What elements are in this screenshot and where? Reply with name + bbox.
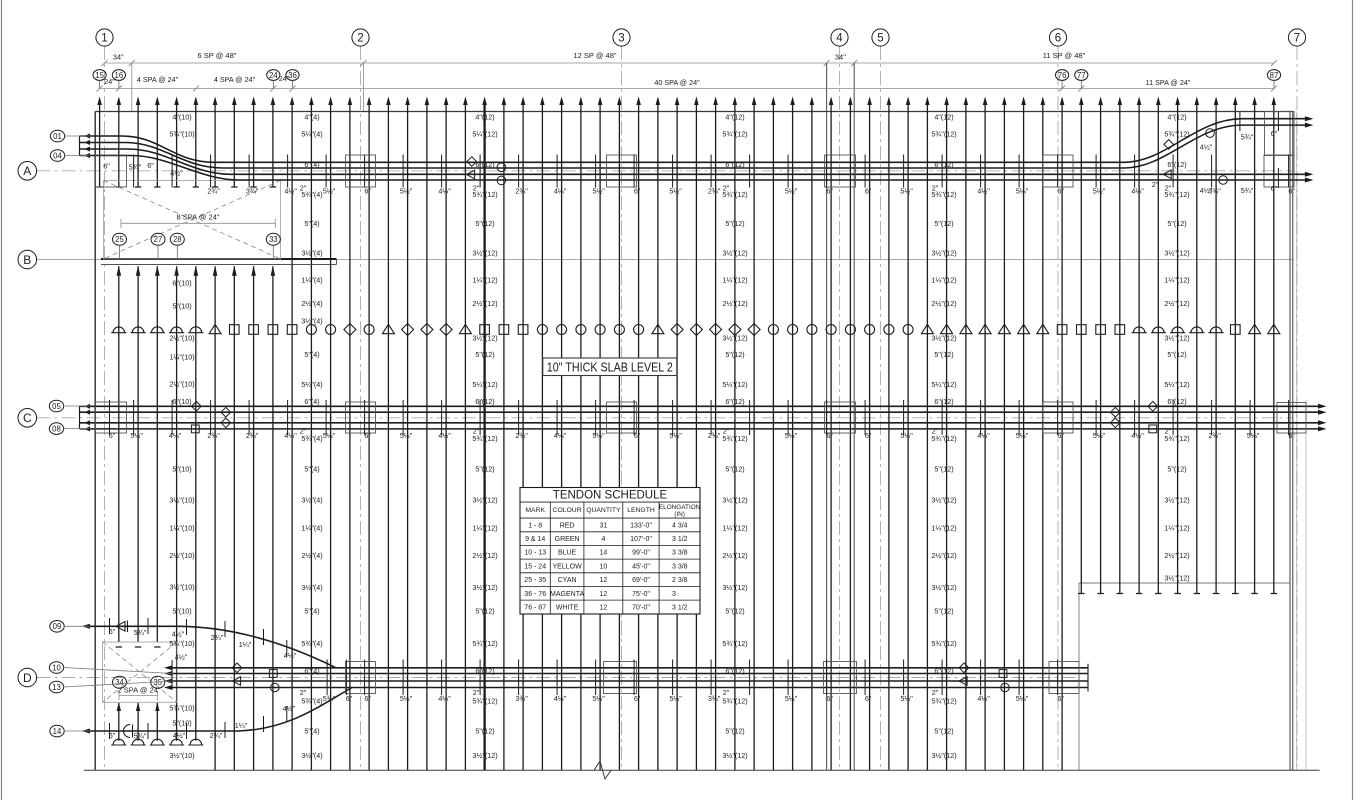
svg-text:5"(12): 5"(12) bbox=[934, 727, 953, 736]
svg-text:4½": 4½" bbox=[438, 431, 451, 440]
svg-text:4¼": 4¼" bbox=[169, 431, 182, 440]
svg-text:3½"(12): 3½"(12) bbox=[472, 751, 497, 760]
svg-text:5¾"(4): 5¾"(4) bbox=[301, 697, 322, 706]
svg-text:6": 6" bbox=[1288, 187, 1295, 196]
svg-text:01: 01 bbox=[53, 132, 62, 141]
svg-text:4¼": 4¼" bbox=[1131, 187, 1144, 196]
svg-text:3½"(10): 3½"(10) bbox=[169, 496, 194, 505]
svg-text:76 - 87: 76 - 87 bbox=[524, 604, 546, 611]
svg-text:5¾"(12): 5¾"(12) bbox=[1164, 190, 1189, 199]
svg-text:5½": 5½" bbox=[130, 431, 143, 440]
svg-text:10: 10 bbox=[52, 663, 61, 672]
svg-text:5¾": 5¾" bbox=[1241, 186, 1254, 195]
svg-text:6": 6" bbox=[1271, 184, 1278, 193]
svg-text:6"(4): 6"(4) bbox=[304, 667, 319, 676]
svg-text:5"(10): 5"(10) bbox=[172, 465, 191, 474]
svg-text:5¾"(4): 5¾"(4) bbox=[301, 434, 322, 443]
svg-text:2½"(4): 2½"(4) bbox=[301, 299, 322, 308]
svg-text:2": 2" bbox=[1152, 180, 1159, 189]
svg-text:1¼": 1¼" bbox=[235, 721, 248, 730]
svg-text:3½"(4): 3½"(4) bbox=[301, 751, 322, 760]
svg-text:4: 4 bbox=[601, 536, 605, 543]
svg-text:RED: RED bbox=[560, 522, 575, 529]
svg-text:5"(12): 5"(12) bbox=[934, 350, 953, 359]
svg-text:12 SP @ 48": 12 SP @ 48" bbox=[573, 51, 616, 60]
svg-text:1: 1 bbox=[101, 33, 107, 45]
svg-text:6"(10): 6"(10) bbox=[172, 397, 191, 406]
svg-text:6"(12): 6"(12) bbox=[475, 160, 494, 169]
svg-text:6": 6" bbox=[1057, 187, 1064, 196]
svg-text:5¾"(12): 5¾"(12) bbox=[931, 190, 956, 199]
svg-text:5"(12): 5"(12) bbox=[725, 727, 744, 736]
svg-text:6"(12): 6"(12) bbox=[475, 397, 494, 406]
svg-text:5¾"(10): 5¾"(10) bbox=[169, 639, 194, 648]
svg-text:6": 6" bbox=[109, 431, 116, 440]
svg-text:6": 6" bbox=[147, 161, 154, 170]
svg-text:CYAN: CYAN bbox=[558, 577, 577, 584]
svg-text:5¼"(4): 5¼"(4) bbox=[301, 130, 322, 139]
svg-text:4"(12): 4"(12) bbox=[934, 113, 953, 122]
svg-text:5"(12): 5"(12) bbox=[1167, 219, 1186, 228]
svg-text:4 3/4: 4 3/4 bbox=[672, 522, 688, 529]
svg-text:YELLOW: YELLOW bbox=[553, 563, 583, 570]
svg-text:4½": 4½" bbox=[170, 169, 183, 178]
svg-text:3½"(12): 3½"(12) bbox=[472, 496, 497, 505]
svg-text:6"(12): 6"(12) bbox=[725, 160, 744, 169]
svg-text:5½": 5½" bbox=[900, 187, 913, 196]
svg-text:5¾"(12): 5¾"(12) bbox=[722, 639, 747, 648]
svg-text:3½"(12): 3½"(12) bbox=[722, 751, 747, 760]
svg-text:5"(12): 5"(12) bbox=[934, 607, 953, 616]
svg-text:5"(12): 5"(12) bbox=[725, 465, 744, 474]
svg-text:4"(12): 4"(12) bbox=[725, 113, 744, 122]
svg-text:3½"(12): 3½"(12) bbox=[1164, 249, 1189, 258]
svg-text:5"(12): 5"(12) bbox=[1167, 465, 1186, 474]
svg-text:5"(4): 5"(4) bbox=[304, 465, 319, 474]
svg-text:34": 34" bbox=[835, 53, 846, 62]
svg-text:5½": 5½" bbox=[785, 187, 798, 196]
svg-text:1¼"(12): 1¼"(12) bbox=[1164, 524, 1189, 533]
svg-text:4¼": 4¼" bbox=[554, 187, 567, 196]
svg-text:1¼"(4): 1¼"(4) bbox=[301, 276, 322, 285]
svg-text:4½": 4½" bbox=[977, 694, 990, 703]
svg-text:5"(12): 5"(12) bbox=[725, 607, 744, 616]
svg-text:5"(12): 5"(12) bbox=[475, 465, 494, 474]
svg-text:3¾": 3¾" bbox=[708, 694, 721, 703]
svg-text:5"(12): 5"(12) bbox=[475, 219, 494, 228]
svg-text:5"(12): 5"(12) bbox=[725, 350, 744, 359]
svg-text:5¾"(12): 5¾"(12) bbox=[1164, 434, 1189, 443]
svg-text:08: 08 bbox=[52, 425, 61, 434]
svg-text:3 1/2: 3 1/2 bbox=[672, 604, 688, 611]
svg-text:5¼"(12): 5¼"(12) bbox=[931, 380, 956, 389]
svg-text:6: 6 bbox=[1055, 33, 1061, 45]
svg-text:4 SPA @ 24": 4 SPA @ 24" bbox=[137, 75, 179, 84]
svg-text:107'-0": 107'-0" bbox=[630, 536, 652, 543]
svg-text:6": 6" bbox=[364, 187, 371, 196]
svg-text:4½": 4½" bbox=[284, 187, 297, 196]
svg-text:5"(12): 5"(12) bbox=[934, 219, 953, 228]
svg-text:2¾": 2¾" bbox=[515, 431, 528, 440]
svg-text:12: 12 bbox=[600, 591, 608, 598]
svg-text:3½"(12): 3½"(12) bbox=[931, 334, 956, 343]
svg-text:4¼": 4¼" bbox=[438, 187, 451, 196]
svg-text:3 3/8: 3 3/8 bbox=[672, 563, 688, 570]
svg-text:5"(12): 5"(12) bbox=[475, 350, 494, 359]
svg-text:5¼": 5¼" bbox=[1016, 187, 1029, 196]
svg-text:2½"(12): 2½"(12) bbox=[472, 551, 497, 560]
svg-text:MARK: MARK bbox=[525, 507, 545, 514]
svg-text:6": 6" bbox=[634, 694, 641, 703]
svg-text:04: 04 bbox=[53, 151, 62, 160]
svg-text:5½": 5½" bbox=[1093, 431, 1106, 440]
svg-text:5"(10): 5"(10) bbox=[172, 719, 191, 728]
svg-text:2¾": 2¾" bbox=[515, 187, 528, 196]
svg-text:4¼": 4¼" bbox=[1131, 431, 1144, 440]
svg-text:6"(10): 6"(10) bbox=[172, 279, 191, 288]
svg-text:27: 27 bbox=[154, 235, 163, 244]
svg-text:5"(4): 5"(4) bbox=[304, 219, 319, 228]
svg-text:5¾"(12): 5¾"(12) bbox=[931, 130, 956, 139]
svg-text:1¼"(12): 1¼"(12) bbox=[931, 276, 956, 285]
svg-text:5"(4): 5"(4) bbox=[304, 607, 319, 616]
svg-text:2½"(12): 2½"(12) bbox=[722, 299, 747, 308]
svg-text:BLUE: BLUE bbox=[558, 550, 577, 557]
svg-text:3½"(12): 3½"(12) bbox=[931, 249, 956, 258]
svg-text:5½": 5½" bbox=[900, 431, 913, 440]
svg-text:5½": 5½" bbox=[400, 187, 413, 196]
svg-text:33: 33 bbox=[269, 235, 278, 244]
svg-text:COLOUR: COLOUR bbox=[553, 507, 582, 514]
svg-text:6": 6" bbox=[346, 694, 353, 703]
svg-text:4¼": 4¼" bbox=[554, 431, 567, 440]
svg-text:6": 6" bbox=[634, 431, 641, 440]
svg-text:A: A bbox=[23, 164, 31, 178]
svg-text:5½": 5½" bbox=[592, 431, 605, 440]
svg-text:6": 6" bbox=[364, 431, 371, 440]
svg-text:75'-0": 75'-0" bbox=[632, 591, 650, 598]
svg-text:6": 6" bbox=[865, 694, 872, 703]
svg-text:05: 05 bbox=[52, 402, 61, 411]
svg-text:2¾": 2¾" bbox=[246, 431, 259, 440]
svg-text:3½"(12): 3½"(12) bbox=[722, 249, 747, 258]
svg-text:MAGENTA: MAGENTA bbox=[550, 591, 584, 598]
svg-text:5¼"(12): 5¼"(12) bbox=[722, 380, 747, 389]
svg-text:3½"(12): 3½"(12) bbox=[722, 583, 747, 592]
svg-text:12: 12 bbox=[600, 577, 608, 584]
svg-text:5¾"(12): 5¾"(12) bbox=[722, 190, 747, 199]
svg-text:2¾": 2¾" bbox=[708, 431, 721, 440]
svg-text:70'-0": 70'-0" bbox=[632, 604, 650, 611]
svg-text:5"(12): 5"(12) bbox=[475, 607, 494, 616]
svg-text:5½": 5½" bbox=[669, 694, 682, 703]
svg-text:6": 6" bbox=[826, 431, 833, 440]
svg-text:4: 4 bbox=[836, 33, 843, 45]
svg-text:5¾"(4): 5¾"(4) bbox=[301, 639, 322, 648]
svg-text:4½": 4½" bbox=[977, 431, 990, 440]
svg-text:4"(4): 4"(4) bbox=[304, 113, 319, 122]
svg-text:(IN): (IN) bbox=[674, 511, 685, 518]
svg-text:5½": 5½" bbox=[592, 694, 605, 703]
svg-text:16: 16 bbox=[115, 71, 124, 80]
svg-text:5¼": 5¼" bbox=[1247, 431, 1260, 440]
svg-text:09: 09 bbox=[53, 622, 62, 631]
svg-text:3½"(10): 3½"(10) bbox=[169, 751, 194, 760]
svg-text:5¾"(12): 5¾"(12) bbox=[1164, 130, 1189, 139]
svg-text:5"(12): 5"(12) bbox=[934, 465, 953, 474]
svg-text:3½"(12): 3½"(12) bbox=[472, 334, 497, 343]
svg-text:36 - 76: 36 - 76 bbox=[524, 591, 546, 598]
svg-text:6": 6" bbox=[109, 731, 116, 740]
svg-text:45'-0": 45'-0" bbox=[632, 563, 650, 570]
svg-text:5¾": 5¾" bbox=[129, 163, 142, 172]
svg-text:3 3/8: 3 3/8 bbox=[672, 550, 688, 557]
svg-text:6": 6" bbox=[865, 431, 872, 440]
svg-text:5¼": 5¼" bbox=[669, 431, 682, 440]
svg-text:5"(10): 5"(10) bbox=[172, 607, 191, 616]
svg-text:5: 5 bbox=[877, 33, 883, 45]
svg-text:1¼"(12): 1¼"(12) bbox=[472, 276, 497, 285]
svg-text:10: 10 bbox=[600, 563, 608, 570]
svg-text:4½": 4½" bbox=[1200, 143, 1213, 152]
svg-text:4"(10): 4"(10) bbox=[172, 113, 191, 122]
svg-text:5¾": 5¾" bbox=[1241, 133, 1254, 142]
svg-text:5½": 5½" bbox=[323, 431, 336, 440]
svg-text:5¾"(10): 5¾"(10) bbox=[169, 130, 194, 139]
svg-text:4½": 4½" bbox=[172, 630, 185, 639]
svg-text:15 - 24: 15 - 24 bbox=[524, 563, 546, 570]
svg-text:76: 76 bbox=[1058, 71, 1067, 80]
svg-text:5½": 5½" bbox=[785, 694, 798, 703]
svg-text:3½"(12): 3½"(12) bbox=[1164, 334, 1189, 343]
svg-text:5¼"(12): 5¼"(12) bbox=[1164, 380, 1189, 389]
svg-text:5"(4): 5"(4) bbox=[304, 727, 319, 736]
svg-text:5"(12): 5"(12) bbox=[475, 727, 494, 736]
svg-text:1¼"(4): 1¼"(4) bbox=[301, 524, 322, 533]
svg-text:6"(4): 6"(4) bbox=[304, 160, 319, 169]
svg-text:2¾": 2¾" bbox=[207, 187, 220, 196]
svg-text:6": 6" bbox=[103, 162, 110, 171]
svg-text:5½": 5½" bbox=[400, 694, 413, 703]
svg-text:6": 6" bbox=[826, 187, 833, 196]
svg-text:2¾": 2¾" bbox=[210, 731, 223, 740]
svg-text:5¾"(12): 5¾"(12) bbox=[722, 697, 747, 706]
svg-text:5¾"(12): 5¾"(12) bbox=[722, 434, 747, 443]
svg-text:3: 3 bbox=[672, 591, 676, 598]
svg-text:3½"(12): 3½"(12) bbox=[931, 751, 956, 760]
svg-text:6 SP @ 48": 6 SP @ 48" bbox=[198, 51, 237, 60]
svg-text:6"(12): 6"(12) bbox=[934, 667, 953, 676]
svg-text:6"(12): 6"(12) bbox=[725, 397, 744, 406]
svg-text:1¼"(10): 1¼"(10) bbox=[169, 353, 194, 362]
svg-text:5½": 5½" bbox=[1093, 187, 1106, 196]
svg-text:1¼"(12): 1¼"(12) bbox=[472, 524, 497, 533]
svg-text:5¾"(12): 5¾"(12) bbox=[931, 434, 956, 443]
svg-text:4"(12): 4"(12) bbox=[1167, 113, 1186, 122]
svg-text:4½": 4½" bbox=[977, 187, 990, 196]
svg-text:2¾": 2¾" bbox=[211, 633, 224, 642]
svg-text:2½"(12): 2½"(12) bbox=[1164, 299, 1189, 308]
svg-text:2¾": 2¾" bbox=[1208, 431, 1221, 440]
svg-text:5¾"(12): 5¾"(12) bbox=[472, 434, 497, 443]
svg-text:15: 15 bbox=[95, 71, 104, 80]
svg-text:5¾"(12): 5¾"(12) bbox=[931, 639, 956, 648]
svg-text:5½": 5½" bbox=[1016, 431, 1029, 440]
svg-text:6"(12): 6"(12) bbox=[934, 160, 953, 169]
svg-text:GREEN: GREEN bbox=[555, 536, 580, 543]
svg-text:3½"(4): 3½"(4) bbox=[301, 583, 322, 592]
svg-text:5"(12): 5"(12) bbox=[725, 219, 744, 228]
svg-text:69'-0": 69'-0" bbox=[632, 577, 650, 584]
svg-text:7: 7 bbox=[1294, 33, 1300, 45]
svg-text:5¾": 5¾" bbox=[323, 694, 336, 703]
svg-text:D: D bbox=[23, 671, 32, 685]
svg-text:2½"(10): 2½"(10) bbox=[169, 334, 194, 343]
svg-text:6": 6" bbox=[865, 187, 872, 196]
svg-text:34: 34 bbox=[115, 678, 124, 687]
svg-text:36: 36 bbox=[288, 71, 297, 80]
svg-text:2½"(12): 2½"(12) bbox=[931, 299, 956, 308]
svg-text:4½": 4½" bbox=[175, 653, 188, 662]
svg-text:5½": 5½" bbox=[592, 187, 605, 196]
svg-text:6": 6" bbox=[364, 694, 371, 703]
svg-text:77: 77 bbox=[1077, 71, 1086, 80]
svg-text:5½": 5½" bbox=[785, 431, 798, 440]
svg-text:6": 6" bbox=[109, 627, 116, 636]
svg-text:1¼"(10): 1¼"(10) bbox=[169, 524, 194, 533]
svg-text:40 SPA @ 24": 40 SPA @ 24" bbox=[654, 78, 700, 87]
svg-text:4½": 4½" bbox=[173, 731, 186, 740]
svg-text:11 SP @ 48": 11 SP @ 48" bbox=[1043, 51, 1086, 60]
svg-text:3½"(4): 3½"(4) bbox=[301, 249, 322, 258]
svg-text:9 & 14: 9 & 14 bbox=[525, 536, 545, 543]
svg-text:3½"(12): 3½"(12) bbox=[931, 583, 956, 592]
svg-text:2½"(4): 2½"(4) bbox=[301, 551, 322, 560]
svg-text:5¼"(12): 5¼"(12) bbox=[472, 380, 497, 389]
svg-text:C: C bbox=[23, 411, 32, 425]
svg-text:2½"(10): 2½"(10) bbox=[169, 551, 194, 560]
svg-text:2¾": 2¾" bbox=[207, 431, 220, 440]
svg-text:6": 6" bbox=[634, 187, 641, 196]
svg-text:12: 12 bbox=[600, 604, 608, 611]
svg-text:5¼"(12): 5¼"(12) bbox=[472, 130, 497, 139]
svg-text:2 3/8: 2 3/8 bbox=[672, 577, 688, 584]
svg-text:35: 35 bbox=[153, 678, 162, 687]
svg-text:3½"(12): 3½"(12) bbox=[1164, 574, 1189, 583]
svg-text:2¾": 2¾" bbox=[708, 187, 721, 196]
svg-text:3½"(12): 3½"(12) bbox=[722, 334, 747, 343]
svg-text:2½"(10): 2½"(10) bbox=[169, 380, 194, 389]
svg-text:6"(12): 6"(12) bbox=[1167, 397, 1186, 406]
svg-text:6"(12): 6"(12) bbox=[475, 667, 494, 676]
svg-text:3½"(12): 3½"(12) bbox=[931, 496, 956, 505]
svg-text:TENDON SCHEDULE: TENDON SCHEDULE bbox=[553, 490, 668, 502]
svg-text:3½"(4): 3½"(4) bbox=[301, 496, 322, 505]
svg-text:4½": 4½" bbox=[554, 694, 567, 703]
svg-text:6"(4): 6"(4) bbox=[304, 397, 319, 406]
svg-text:3½"(12): 3½"(12) bbox=[472, 583, 497, 592]
svg-text:28: 28 bbox=[173, 235, 182, 244]
svg-text:5¾": 5¾" bbox=[134, 628, 147, 637]
svg-text:3½"(10): 3½"(10) bbox=[169, 583, 194, 592]
svg-text:3½"(12): 3½"(12) bbox=[722, 496, 747, 505]
svg-text:5"(4): 5"(4) bbox=[304, 350, 319, 359]
svg-text:1¼"(12): 1¼"(12) bbox=[722, 276, 747, 285]
svg-text:4 SPA @ 24": 4 SPA @ 24" bbox=[214, 75, 256, 84]
svg-text:87: 87 bbox=[1270, 71, 1279, 80]
svg-text:3 1/2: 3 1/2 bbox=[672, 536, 688, 543]
svg-text:5¼"(4): 5¼"(4) bbox=[301, 380, 322, 389]
svg-text:5"(10): 5"(10) bbox=[172, 302, 191, 311]
svg-text:34": 34" bbox=[113, 53, 124, 62]
svg-text:B: B bbox=[23, 253, 31, 267]
svg-text:4"(12): 4"(12) bbox=[475, 113, 494, 122]
svg-text:1¼"(12): 1¼"(12) bbox=[931, 524, 956, 533]
svg-text:99'-0": 99'-0" bbox=[632, 550, 650, 557]
svg-text:4¼": 4¼" bbox=[438, 694, 451, 703]
svg-text:31: 31 bbox=[600, 522, 608, 529]
svg-text:6"(12): 6"(12) bbox=[1167, 160, 1186, 169]
svg-text:10 - 13: 10 - 13 bbox=[524, 550, 546, 557]
svg-text:5½": 5½" bbox=[669, 187, 682, 196]
svg-text:25: 25 bbox=[115, 235, 124, 244]
svg-text:1¼"(12): 1¼"(12) bbox=[722, 524, 747, 533]
svg-text:24: 24 bbox=[269, 71, 278, 80]
svg-text:5"(12): 5"(12) bbox=[1167, 350, 1186, 359]
svg-text:11 SPA @ 24": 11 SPA @ 24" bbox=[1146, 78, 1191, 87]
svg-text:8 SPA @ 24": 8 SPA @ 24" bbox=[176, 213, 219, 222]
svg-text:5¾"(10): 5¾"(10) bbox=[169, 704, 194, 713]
svg-text:3¾": 3¾" bbox=[246, 187, 259, 196]
svg-text:6": 6" bbox=[826, 694, 833, 703]
svg-text:QUANTITY: QUANTITY bbox=[586, 507, 621, 514]
svg-text:13: 13 bbox=[52, 683, 61, 692]
svg-text:6": 6" bbox=[1271, 129, 1278, 138]
svg-text:LENGTH: LENGTH bbox=[627, 507, 655, 514]
svg-text:4½": 4½" bbox=[284, 651, 297, 660]
svg-text:WHITE: WHITE bbox=[556, 604, 579, 611]
svg-text:10" THICK SLAB LEVEL 2: 10" THICK SLAB LEVEL 2 bbox=[547, 360, 673, 374]
svg-text:133'-0": 133'-0" bbox=[630, 522, 652, 529]
svg-text:6": 6" bbox=[1057, 694, 1064, 703]
svg-text:3½"(12): 3½"(12) bbox=[1164, 496, 1189, 505]
svg-text:5¼": 5¼" bbox=[900, 694, 913, 703]
svg-text:14: 14 bbox=[600, 550, 608, 557]
svg-text:ELONGATION: ELONGATION bbox=[659, 504, 701, 511]
svg-text:2½"(12): 2½"(12) bbox=[1164, 551, 1189, 560]
svg-text:3½"(4): 3½"(4) bbox=[301, 317, 322, 326]
svg-text:1¼": 1¼" bbox=[239, 640, 252, 649]
svg-text:3¾": 3¾" bbox=[515, 694, 528, 703]
svg-text:5½": 5½" bbox=[400, 431, 413, 440]
svg-text:1 - 8: 1 - 8 bbox=[528, 522, 542, 529]
svg-text:5¾"(12): 5¾"(12) bbox=[722, 130, 747, 139]
svg-text:5¾"(12): 5¾"(12) bbox=[472, 639, 497, 648]
svg-text:4¼": 4¼" bbox=[284, 431, 297, 440]
svg-text:4½": 4½" bbox=[283, 704, 296, 713]
svg-text:6"(12): 6"(12) bbox=[725, 667, 744, 676]
svg-text:3½"(12): 3½"(12) bbox=[472, 249, 497, 258]
svg-text:5¼": 5¼" bbox=[1016, 694, 1029, 703]
svg-text:5½": 5½" bbox=[323, 187, 336, 196]
svg-text:5¾"(4): 5¾"(4) bbox=[301, 190, 322, 199]
svg-text:6"(12): 6"(12) bbox=[934, 397, 953, 406]
svg-text:5¾"(12): 5¾"(12) bbox=[931, 697, 956, 706]
svg-text:6": 6" bbox=[1288, 431, 1295, 440]
svg-text:5¾"(12): 5¾"(12) bbox=[472, 697, 497, 706]
svg-text:2½"(12): 2½"(12) bbox=[722, 551, 747, 560]
svg-text:4½": 4½" bbox=[1200, 186, 1213, 195]
